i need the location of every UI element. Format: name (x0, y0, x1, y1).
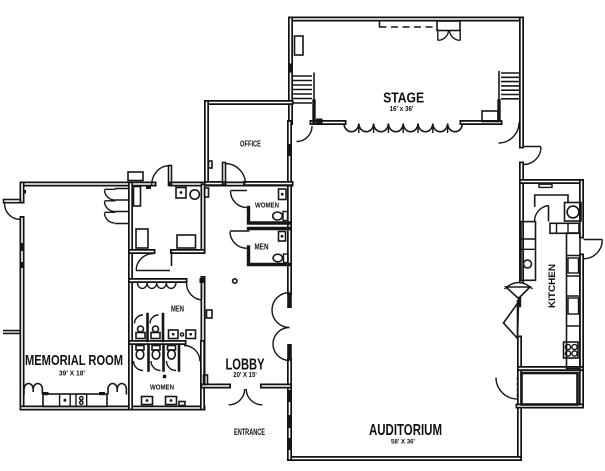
svg-text:KITCHEN: KITCHEN (547, 264, 558, 308)
svg-text:STAGE: STAGE (383, 91, 424, 107)
svg-text:AUDITORIUM: AUDITORIUM (369, 422, 442, 439)
svg-text:LOBBY: LOBBY (226, 357, 265, 374)
svg-text:ENTRANCE: ENTRANCE (234, 427, 265, 437)
svg-text:WOMEN: WOMEN (255, 201, 279, 210)
svg-text:39' X 18': 39' X 18' (59, 371, 85, 378)
svg-text:OFFICE: OFFICE (240, 139, 261, 149)
svg-text:16' x 36': 16' x 36' (390, 106, 414, 113)
svg-text:20' X 15': 20' X 15' (233, 372, 257, 379)
svg-text:MEN: MEN (255, 243, 269, 252)
svg-text:WOMEN: WOMEN (150, 383, 174, 392)
svg-text:MEN: MEN (171, 305, 184, 314)
svg-text:MEMORIAL ROOM: MEMORIAL ROOM (25, 352, 123, 369)
svg-text:58' X 36': 58' X 36' (391, 439, 415, 446)
